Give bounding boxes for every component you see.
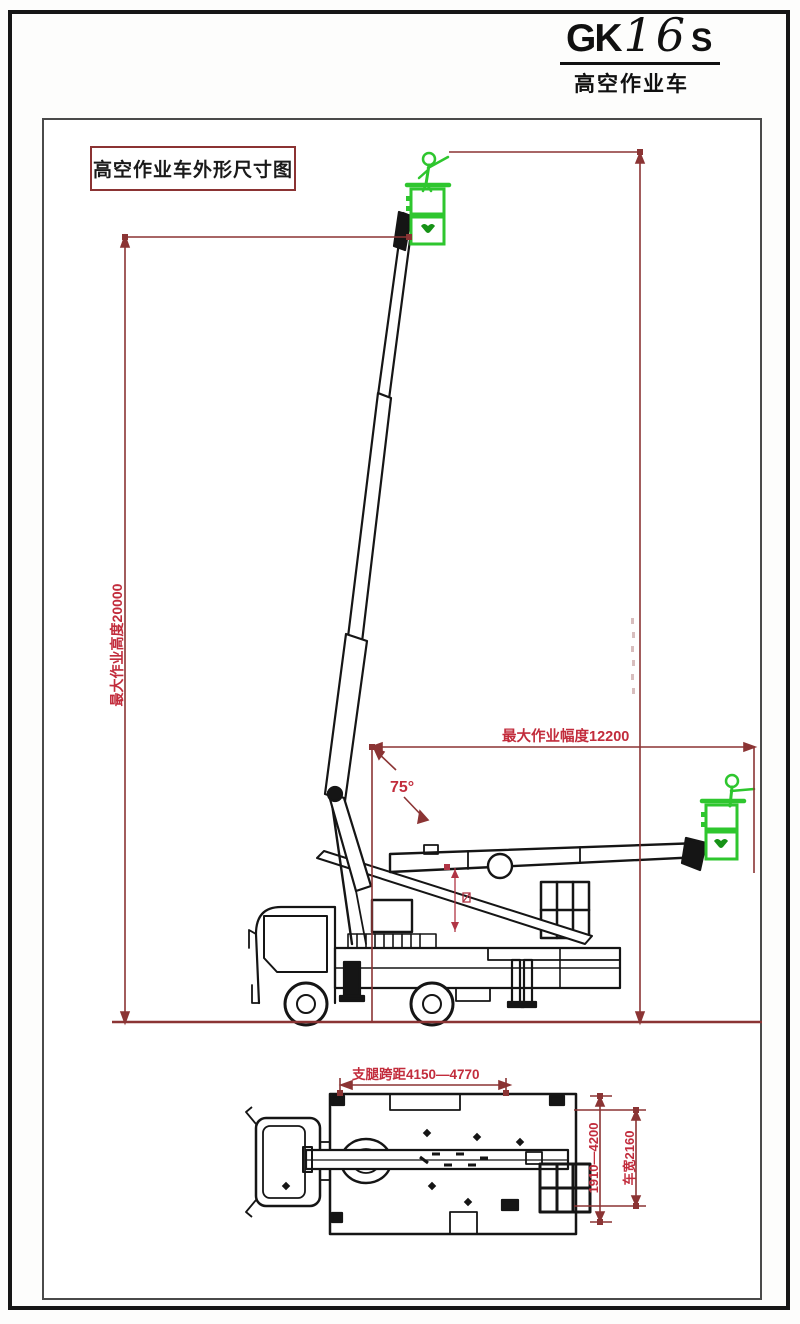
cab-window (264, 916, 327, 972)
deck-railing (348, 934, 436, 948)
boom-angle-label: 75° (390, 779, 414, 796)
max-height-label: 最大作业高度20000 (109, 583, 125, 706)
vehicle-width-label: 车宽2160 (622, 1131, 637, 1186)
cab-mirror (249, 930, 256, 948)
dimension-drawing: 最大作业高度20000 最大作业幅度12200 75° 支腿跨距4150—477… (0, 0, 800, 1324)
max-outreach-label: 最大作业幅度12200 (502, 727, 629, 745)
wheels (285, 983, 453, 1025)
operator-baskets (406, 153, 754, 859)
outrigger-span-label: 支腿跨距4150—4770 (351, 1066, 480, 1082)
spec-sheet-page: GK 16 S 高空作业车 高空作业车外形尺寸图 (0, 0, 800, 1324)
plan-mirror-top (246, 1107, 256, 1124)
plan-mirror-bottom (246, 1200, 256, 1217)
outrigger-width-label: 1910—4200 (586, 1123, 601, 1194)
deck-box (488, 948, 620, 960)
plan-basket-grid (540, 1164, 590, 1212)
boom-cylinder (488, 854, 512, 878)
dimension-lines (112, 149, 762, 1225)
plan-view-truck (246, 1094, 590, 1234)
right-boom-tip (682, 838, 706, 870)
fuel-tank (456, 988, 490, 1001)
top-basket (406, 185, 449, 244)
side-view-truck (249, 212, 706, 1025)
turret-pedestal (372, 900, 412, 932)
horizontal-boom (390, 843, 700, 872)
faint-vertical-label (631, 618, 635, 694)
right-basket (701, 801, 744, 859)
